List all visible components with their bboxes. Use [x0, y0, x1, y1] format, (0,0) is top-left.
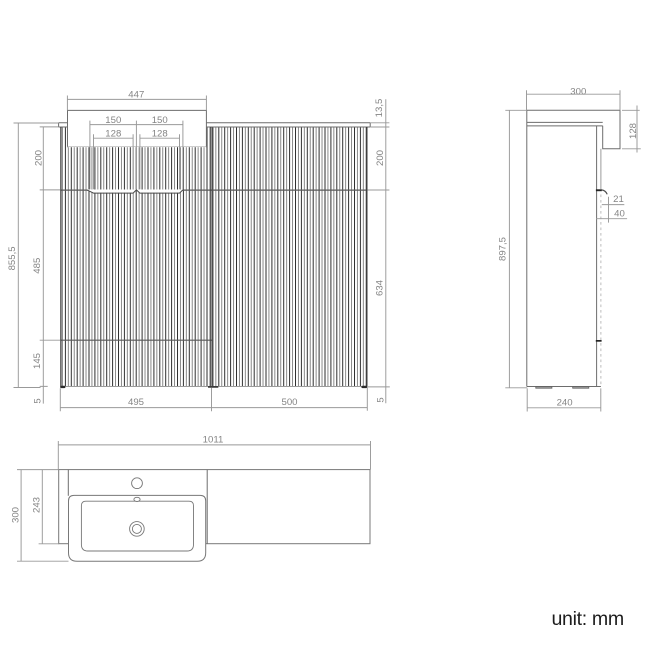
svg-text:447: 447 — [128, 89, 144, 100]
svg-text:200: 200 — [33, 150, 44, 166]
svg-text:855,5: 855,5 — [7, 246, 18, 270]
svg-text:243: 243 — [31, 497, 42, 513]
svg-text:200: 200 — [375, 150, 386, 166]
svg-text:unit: mm: unit: mm — [552, 608, 624, 630]
svg-text:240: 240 — [557, 398, 573, 409]
svg-text:150: 150 — [105, 115, 121, 126]
svg-text:5: 5 — [32, 398, 43, 403]
svg-text:150: 150 — [152, 115, 168, 126]
svg-text:485: 485 — [32, 258, 43, 274]
svg-text:40: 40 — [614, 208, 625, 219]
svg-text:300: 300 — [570, 87, 586, 98]
svg-text:897,5: 897,5 — [498, 237, 509, 261]
svg-text:634: 634 — [375, 279, 386, 296]
svg-text:128: 128 — [105, 129, 121, 140]
svg-text:21: 21 — [613, 194, 624, 205]
svg-text:145: 145 — [32, 353, 43, 369]
svg-text:500: 500 — [281, 397, 297, 408]
svg-text:128: 128 — [152, 129, 168, 140]
svg-text:13,5: 13,5 — [374, 99, 385, 118]
svg-text:5: 5 — [376, 397, 387, 402]
svg-text:1011: 1011 — [203, 435, 224, 446]
svg-text:128: 128 — [628, 123, 639, 139]
svg-text:300: 300 — [11, 507, 22, 523]
svg-text:495: 495 — [128, 397, 144, 408]
